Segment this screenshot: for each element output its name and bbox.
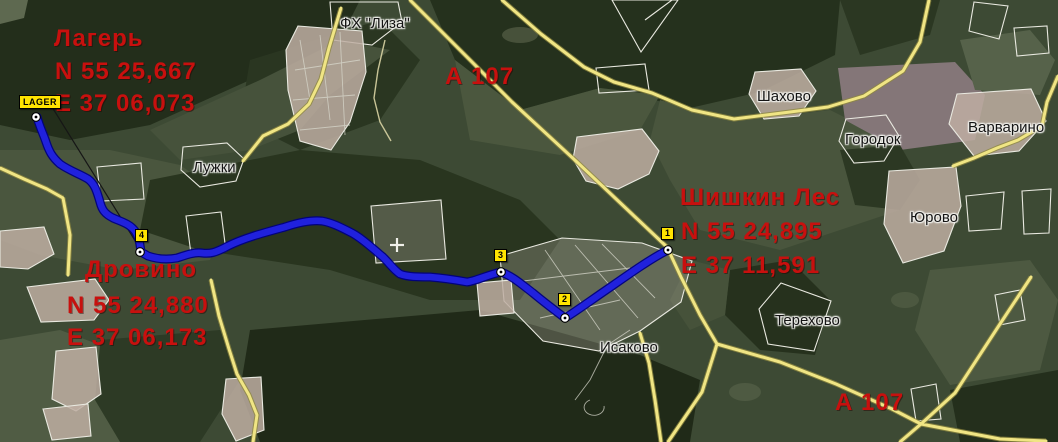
place-label-gorodok: Городок — [845, 131, 900, 148]
map-canvas[interactable]: Лагерь N 55 25,667 E 37 06,073 А 107 Шиш… — [0, 0, 1058, 442]
place-label-yurovo: Юрово — [910, 209, 958, 226]
label-road-a107-top: А 107 — [445, 63, 514, 91]
label-drovino-lon: E 37 06,173 — [67, 324, 207, 352]
label-lager-lat: N 55 25,667 — [55, 58, 197, 86]
place-label-shakhovo: Шахово — [757, 88, 811, 105]
label-shishkin-lat: N 55 24,895 — [681, 218, 823, 246]
place-label-fh-liza: ФХ "Лиза" — [340, 15, 410, 32]
place-label-varvarino: Варварино — [968, 119, 1044, 136]
label-drovino-lat: N 55 24,880 — [67, 292, 209, 320]
label-lager-lon: E 37 06,073 — [55, 90, 195, 118]
marker-2[interactable]: 2 — [558, 293, 571, 306]
marker-lager[interactable]: LAGER — [19, 95, 61, 109]
place-label-isakovo: Исаково — [600, 339, 658, 356]
place-label-terekhovo: Терехово — [775, 312, 840, 329]
label-lager-name: Лагерь — [54, 25, 144, 53]
label-shishkin-lon: E 37 11,591 — [681, 252, 820, 280]
place-label-luzhki: Лужки — [193, 159, 236, 176]
marker-4[interactable]: 4 — [135, 229, 148, 242]
label-shishkin-name: Шишкин Лес — [680, 184, 840, 212]
marker-3[interactable]: 3 — [494, 249, 507, 262]
label-drovino-name: Дровино — [85, 256, 197, 284]
label-road-a107-bottom: А 107 — [835, 389, 904, 417]
marker-1[interactable]: 1 — [661, 227, 674, 240]
